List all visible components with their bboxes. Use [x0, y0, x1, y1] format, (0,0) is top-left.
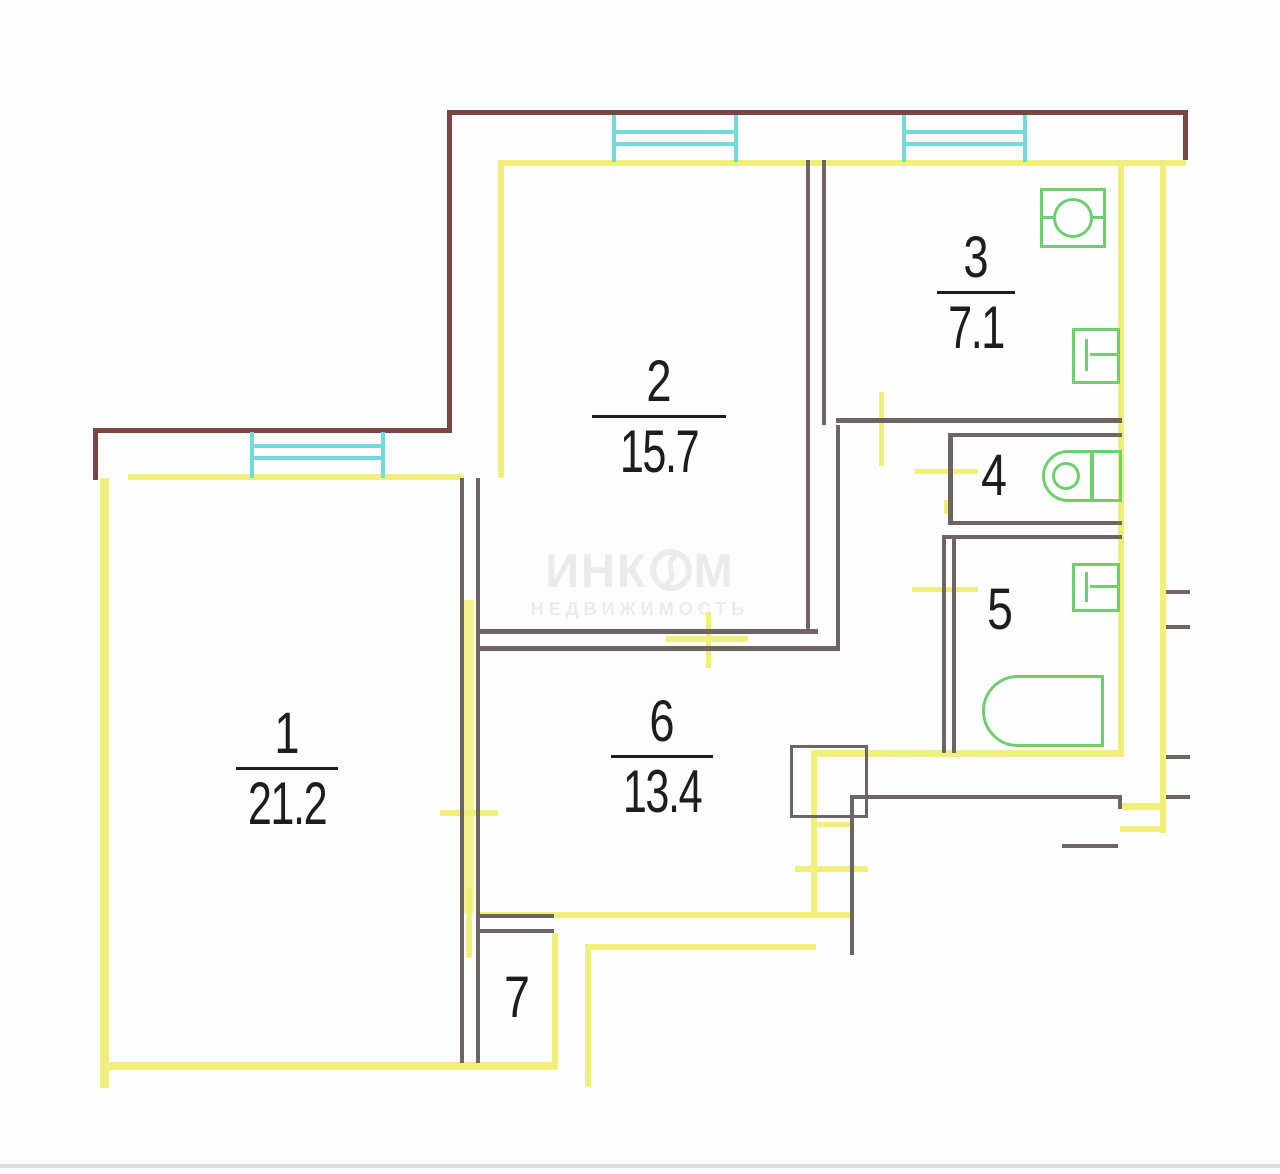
partition-wc-left [948, 433, 953, 525]
wall-stub-right-3 [1166, 755, 1190, 759]
partition-room1-room6-right [476, 478, 480, 1063]
wall-stub-bottom-right [1120, 826, 1166, 832]
wall-room6-bottom-outer [585, 944, 816, 950]
exterior-wall-right-stub [1183, 110, 1188, 160]
door-opening-wc [915, 469, 978, 474]
door-tick-room2 [706, 612, 711, 668]
room-2-label: 2 15.7 [579, 351, 739, 484]
room-6-area: 13.4 [604, 760, 719, 824]
window-room1-pane1 [250, 444, 385, 448]
door-tick-room7 [466, 888, 472, 958]
partition-room7-top-inner [478, 929, 554, 933]
partition-vestibule-left [836, 425, 840, 651]
partition-room2-room3 [822, 160, 826, 425]
door-opening-kitchen [879, 392, 884, 466]
room-1-number: 1 [225, 703, 350, 765]
floor-plan: ИНКМ НЕДВИЖИМОСТЬ [0, 0, 1280, 1174]
entry-wall-jog [1118, 795, 1122, 809]
partition-room2-bottom [478, 629, 818, 634]
wall-entry-bottom-right [1122, 803, 1166, 810]
door-tick-entry [813, 822, 854, 827]
window-room3-pane2 [902, 142, 1027, 146]
partition-fill [464, 600, 474, 913]
toilet-seat-icon [1052, 462, 1080, 490]
room-7-number: 7 [493, 968, 541, 1028]
partition-room1-room6-left [460, 478, 464, 1063]
entry-wall-vertical [850, 797, 854, 955]
partition-room7-top-outer [478, 914, 554, 918]
partition-room2-right-inner [806, 160, 810, 633]
entry-wall-horizontal [850, 795, 1122, 799]
exterior-wall-left-stub [93, 428, 98, 480]
exterior-wall-top [447, 110, 1188, 115]
door-opening-room1 [440, 810, 498, 816]
wall-room2-left [498, 160, 504, 478]
wash-basin-faucet-bar [1085, 572, 1088, 602]
room-3-area: 7.1 [926, 296, 1027, 360]
partition-kitchen-bottom [836, 418, 1122, 423]
partition-bath-left-inner [952, 535, 956, 753]
window-room1-right-jamb [381, 432, 385, 478]
watermark-ring-icon [648, 547, 694, 593]
room-1-area: 21.2 [229, 772, 344, 836]
partition-wc-bottom [948, 521, 1122, 525]
window-room2-pane2 [612, 142, 738, 146]
wall-top-inner [498, 160, 1186, 166]
window-room3-right-jamb [1023, 115, 1027, 162]
wall-room1-top [128, 474, 464, 480]
room-5-number: 5 [976, 580, 1024, 640]
window-room3-left-jamb [902, 115, 906, 162]
entry-closet-box [790, 745, 868, 818]
exterior-wall-room1-top [93, 428, 452, 433]
room-2-number: 2 [597, 351, 722, 413]
wall-stub-right-1 [1166, 590, 1190, 594]
wall-stub-bottom [1062, 844, 1118, 848]
wall-stub-right-4 [1166, 795, 1190, 799]
watermark-logo: ИНКМ НЕДВИЖИМОСТЬ [505, 546, 775, 620]
wall-stub-right-2 [1166, 625, 1190, 629]
window-room2-pane1 [612, 130, 738, 134]
wall-room1-bottom [103, 1062, 558, 1070]
exterior-wall-left-upper [447, 110, 452, 432]
kitchen-sink-icon [1072, 328, 1120, 384]
toilet-tank-icon [1090, 450, 1122, 502]
room-1-label: 1 21.2 [207, 703, 367, 836]
partition-wc-top [948, 433, 1122, 437]
kitchen-sink-faucet-stem [1090, 353, 1120, 356]
stove-burner-icon [1053, 198, 1093, 238]
wash-basin-faucet-stem [1090, 585, 1120, 588]
watermark-brand: ИНКМ [505, 546, 775, 596]
bathtub-icon [982, 675, 1104, 747]
door-opening-entry [795, 866, 868, 872]
watermark-subtitle: НЕДВИЖИМОСТЬ [505, 598, 775, 620]
partition-bath-top [942, 535, 1122, 539]
window-room2-right-jamb [734, 115, 738, 162]
window-room3-pane1 [902, 130, 1027, 134]
wall-room1-left [100, 478, 109, 1088]
window-room1-pane2 [250, 456, 385, 460]
room-3-number: 3 [921, 227, 1030, 289]
wall-corridor-neck-left [585, 944, 591, 1087]
room-3-label: 3 7.1 [906, 227, 1046, 360]
room-4-number: 4 [970, 446, 1018, 506]
room-6-number: 6 [600, 691, 725, 753]
room-6-label: 6 13.4 [582, 691, 742, 824]
wall-right-exterior [1160, 160, 1166, 833]
room-2-area: 15.7 [601, 420, 716, 484]
wall-room7-right [552, 933, 558, 1065]
scan-edge-strip [0, 1164, 1280, 1168]
partition-bath-left-outer [942, 535, 946, 753]
window-room2-left-jamb [612, 115, 616, 162]
partition-room6-top [478, 646, 836, 651]
kitchen-sink-faucet-bar [1085, 339, 1088, 371]
window-room1-left-jamb [250, 432, 254, 478]
